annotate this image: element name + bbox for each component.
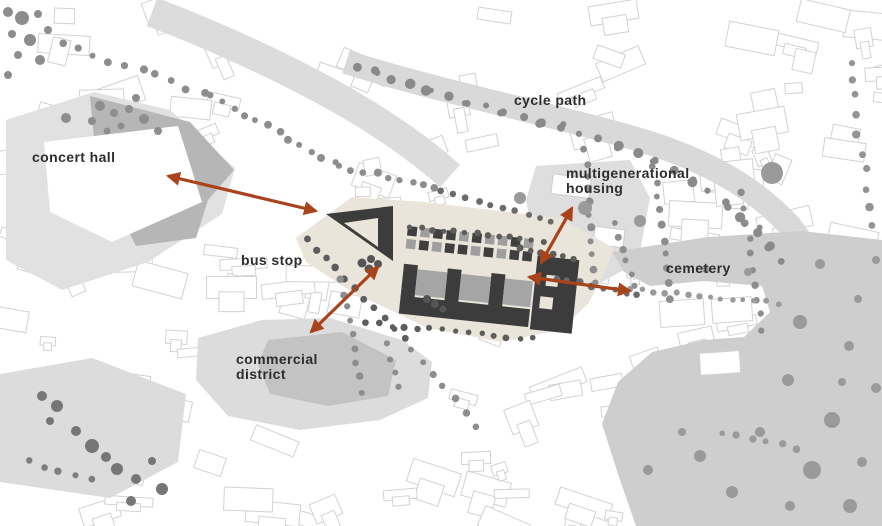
corner-building (530, 256, 580, 334)
label-concert-hall: concert hall (32, 150, 115, 165)
label-cemetery: cemetery (666, 261, 731, 276)
cemetery-zone (602, 231, 882, 526)
label-bus-stop: bus stop (241, 253, 303, 268)
site-plan-canvas (0, 0, 882, 526)
label-multigenerational-housing: multigenerational housing (566, 166, 689, 196)
label-cycle-path: cycle path (514, 93, 586, 108)
site-plan-map: concert hall cycle path multigenerationa… (0, 0, 882, 526)
label-commercial-district: commercial district (236, 352, 318, 382)
concert-hall-zone (6, 92, 235, 290)
